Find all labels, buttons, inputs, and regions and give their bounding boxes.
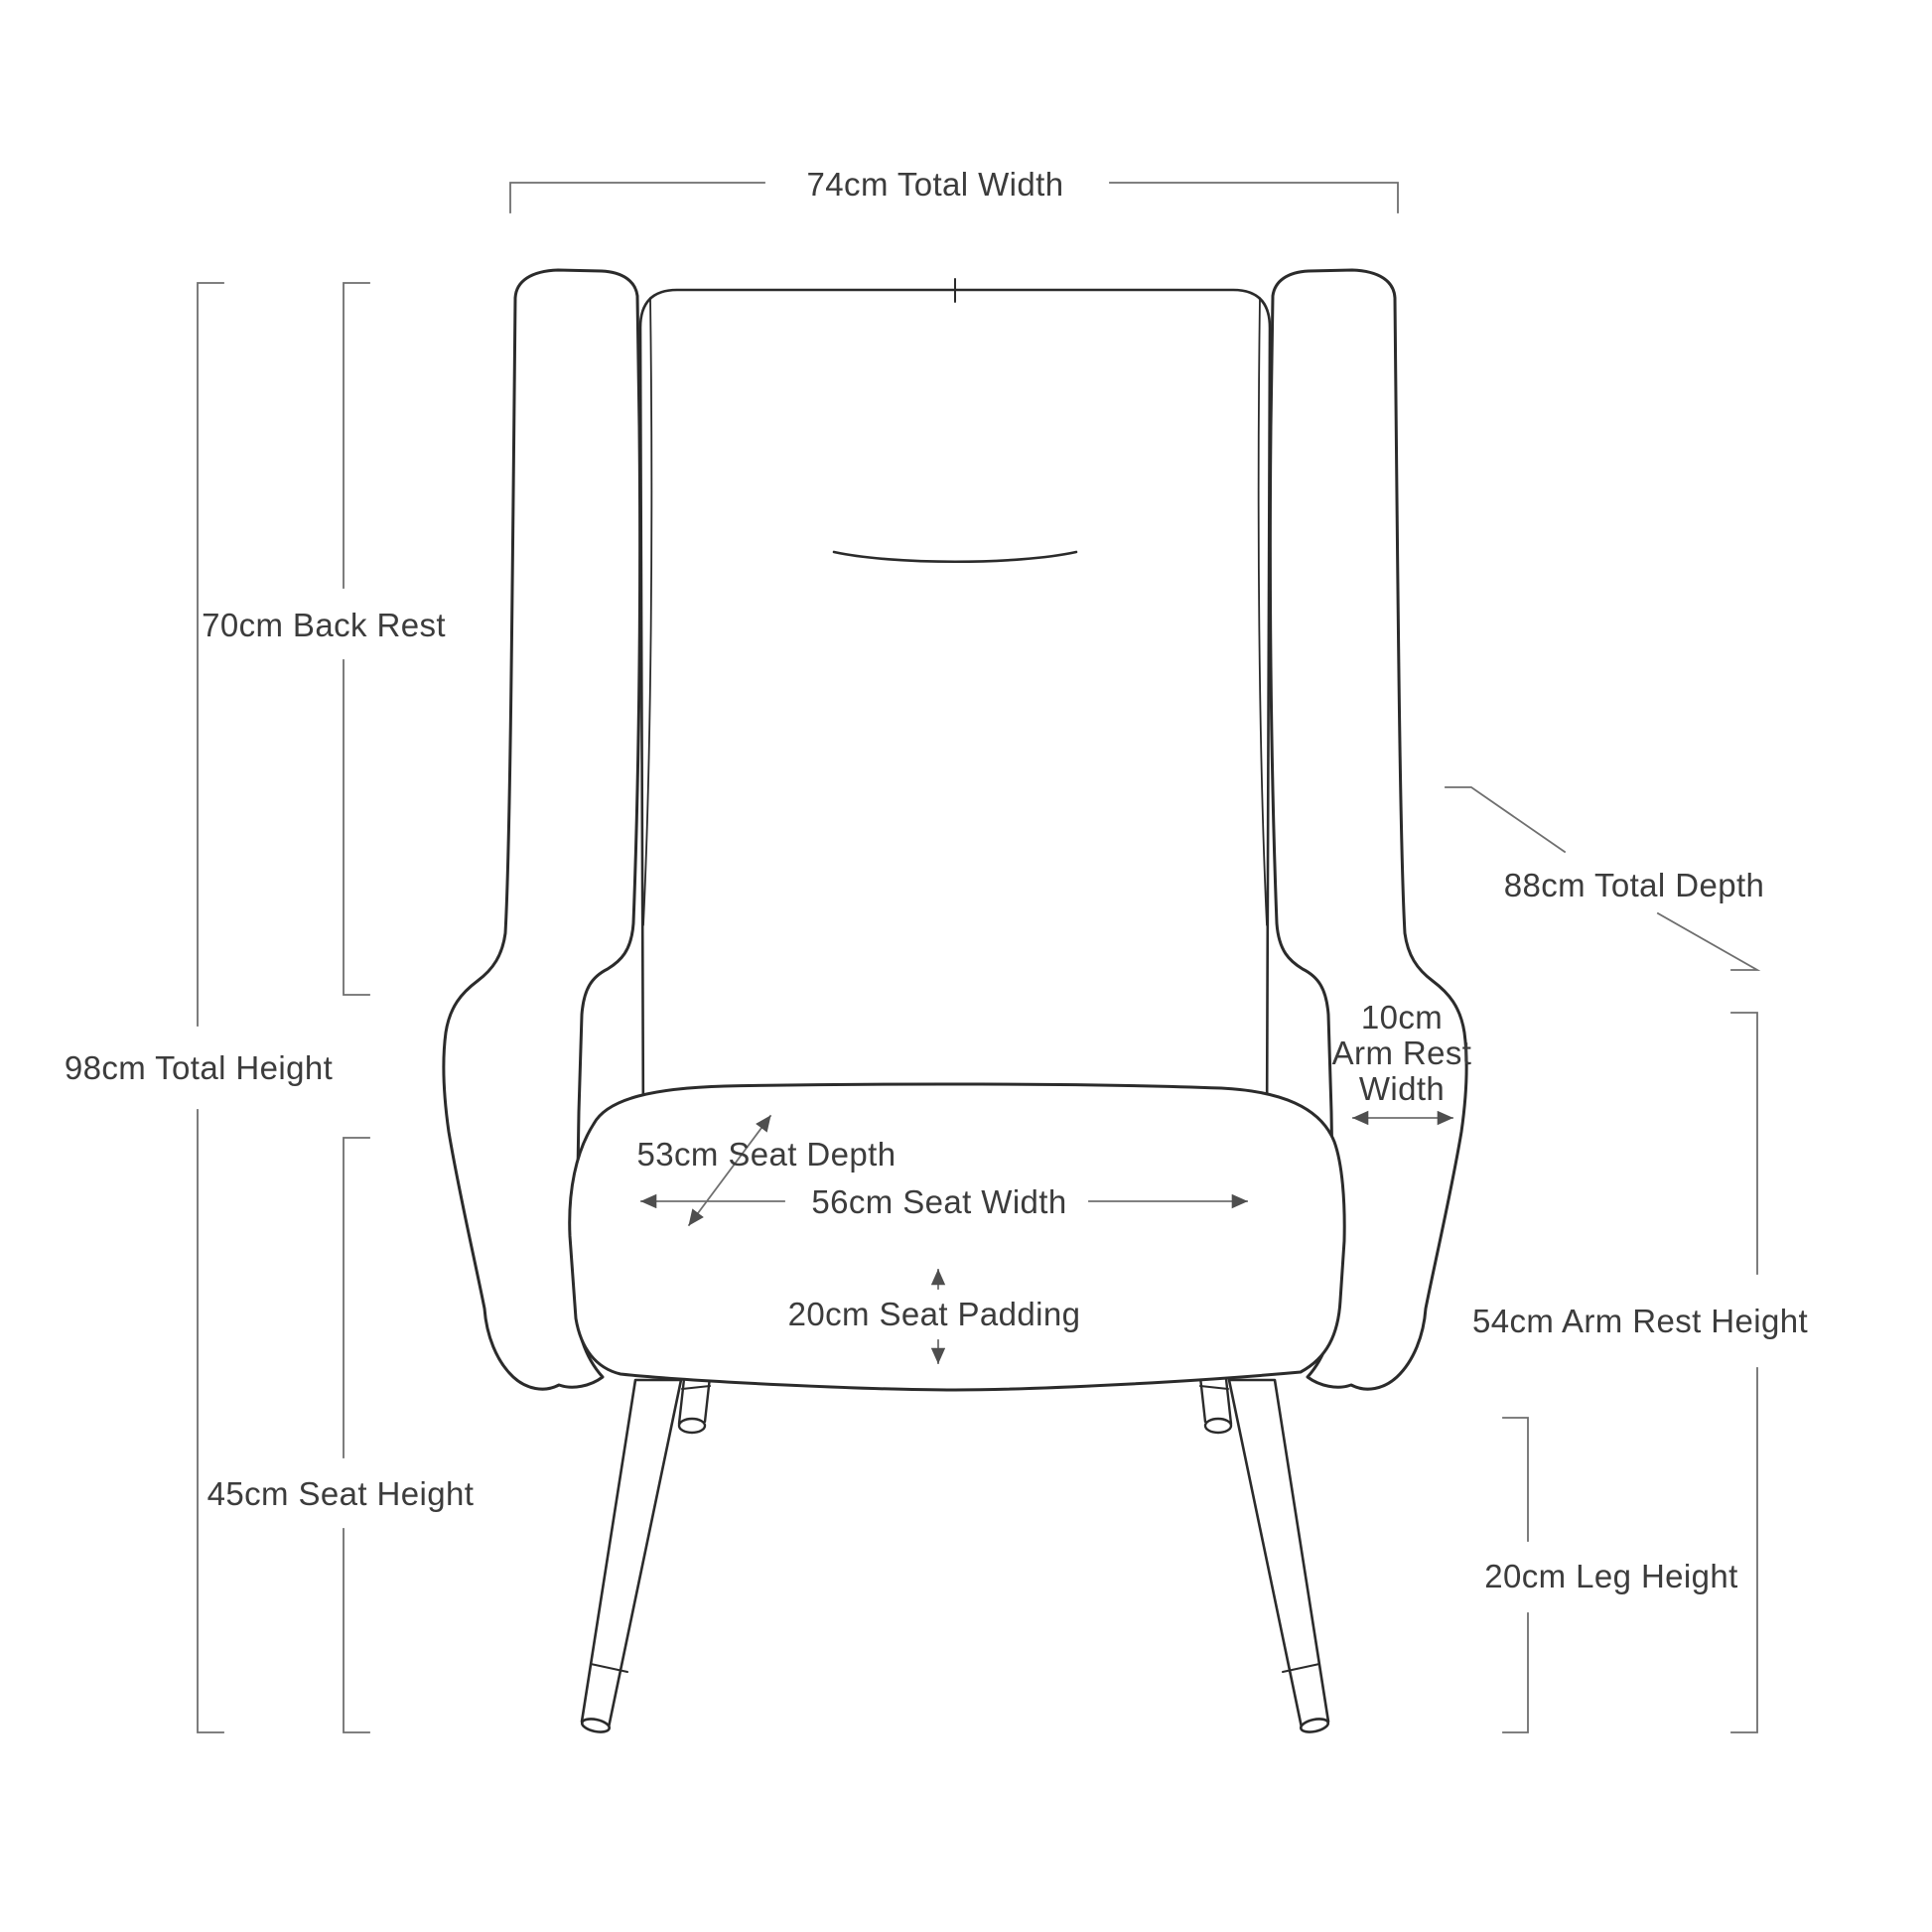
dim-label-arm-rest-width-line3: Width xyxy=(1332,1071,1472,1107)
dim-bracket-seat-height xyxy=(344,1138,369,1732)
dim-label-leg-height: 20cm Leg Height xyxy=(1484,1559,1737,1594)
chair-front-right-leg xyxy=(1229,1380,1329,1734)
diagram-canvas: 74cm Total Width 70cm Back Rest 98cm Tot… xyxy=(0,0,1932,1932)
dim-label-arm-rest-width-line2: Arm Rest xyxy=(1332,1035,1472,1071)
chair-seat-cushion xyxy=(570,1084,1344,1390)
dim-label-total-width: 74cm Total Width xyxy=(807,167,1064,203)
dim-label-seat-padding: 20cm Seat Padding xyxy=(788,1297,1081,1332)
dim-label-total-depth: 88cm Total Depth xyxy=(1504,868,1765,903)
dim-label-back-rest: 70cm Back Rest xyxy=(202,608,446,643)
dim-label-arm-rest-width: 10cm Arm Rest Width xyxy=(1332,1000,1472,1107)
dim-bracket-total-height xyxy=(198,283,223,1732)
dim-label-arm-rest-width-line1: 10cm xyxy=(1332,1000,1472,1035)
dim-label-seat-width: 56cm Seat Width xyxy=(811,1184,1066,1220)
armchair-dimension-drawing xyxy=(0,0,1932,1932)
chair-front-left-leg xyxy=(581,1380,681,1734)
dim-label-arm-rest-height: 54cm Arm Rest Height xyxy=(1472,1304,1808,1339)
dim-label-seat-height: 45cm Seat Height xyxy=(207,1476,475,1512)
dim-label-seat-depth: 53cm Seat Depth xyxy=(637,1137,897,1173)
chair-back-panel xyxy=(640,290,1270,1142)
dim-bracket-arm-rest-height xyxy=(1731,1013,1757,1732)
dim-label-total-height: 98cm Total Height xyxy=(65,1050,333,1086)
